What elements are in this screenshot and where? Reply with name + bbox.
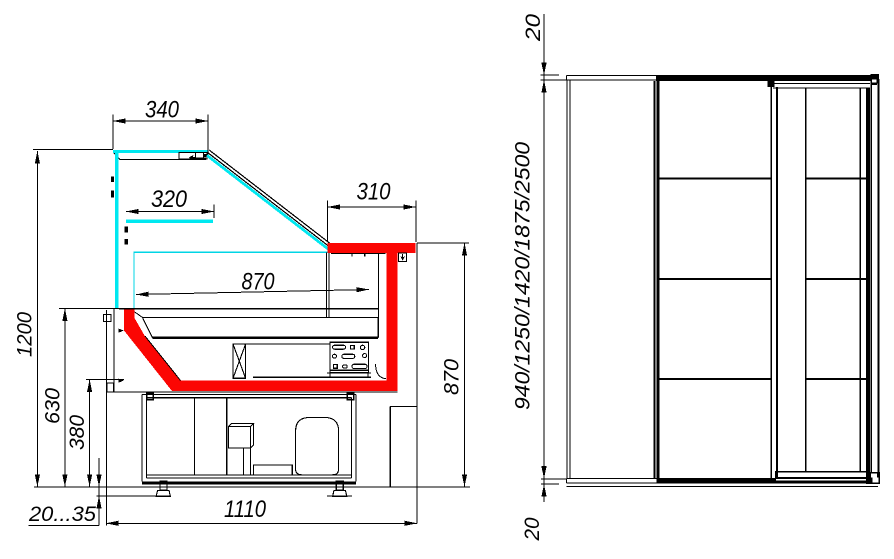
svg-text:310: 310 (357, 179, 392, 206)
svg-text:20: 20 (522, 14, 545, 43)
svg-text:20: 20 (521, 517, 544, 541)
svg-text:1110: 1110 (224, 496, 267, 523)
svg-text:630: 630 (42, 388, 65, 424)
svg-text:870: 870 (242, 269, 276, 296)
svg-text:20...35: 20...35 (28, 503, 96, 526)
svg-text:940/1250/1420/1875/2500: 940/1250/1420/1875/2500 (512, 142, 535, 410)
svg-text:320: 320 (151, 186, 188, 213)
svg-text:870: 870 (441, 359, 464, 395)
svg-text:380: 380 (66, 415, 89, 450)
svg-text:1200: 1200 (14, 312, 37, 357)
svg-text:340: 340 (145, 97, 180, 124)
